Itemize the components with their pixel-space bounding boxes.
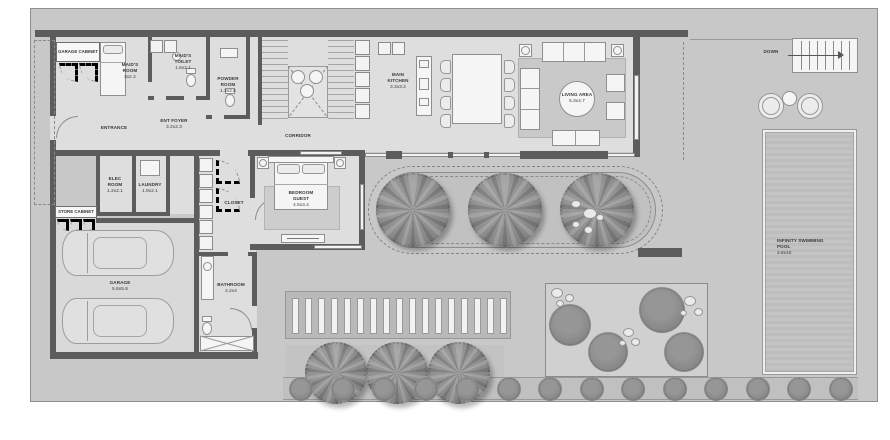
dining-chair (440, 114, 451, 128)
maids-door-gap (154, 96, 166, 100)
setback-dashed-line (683, 42, 684, 160)
closet-cabinet (199, 189, 213, 203)
pergola-slat (370, 298, 377, 334)
garage-label: GARAGE5.8x5.8 (95, 280, 145, 292)
stair-tread (328, 46, 354, 47)
hedge-bush (372, 377, 396, 401)
hedge-bush (621, 377, 645, 401)
bathroom-door-gap (252, 306, 257, 328)
hedge-bush (455, 377, 479, 401)
rock (623, 328, 634, 337)
kitchen-cabinet (355, 104, 370, 119)
bedroom-window-top (300, 151, 342, 155)
sofa-left (520, 68, 540, 130)
bathroom-label: BATHROOM2.2x4 (213, 282, 249, 294)
stair-tread (328, 100, 354, 101)
kitchen-cabinet (355, 40, 370, 55)
rock (596, 214, 604, 221)
terrace-chair-cushion (801, 97, 819, 115)
corner-table-lamp (613, 46, 622, 55)
hedge-bush (414, 377, 438, 401)
oven-box (392, 42, 405, 55)
hedge-bush (746, 377, 770, 401)
landing-chair (309, 70, 323, 84)
stair-tread (262, 88, 288, 89)
bedroom-guest-label: BEDROOM GUEST4.5x3.4 (281, 190, 321, 209)
garage-cabinet-label: GARAGE CABINET (56, 42, 100, 62)
corridor-opening (220, 150, 248, 156)
rock (571, 200, 581, 208)
laundry-label: LAUNDRY1.9x2.1 (136, 182, 164, 194)
car (62, 298, 174, 344)
dining-chair (504, 60, 515, 74)
hedge-bush (538, 377, 562, 401)
glazing-pier (520, 151, 608, 159)
stair-tread (328, 64, 354, 65)
pergola-slat (474, 298, 481, 334)
stair-tread (262, 46, 288, 47)
laundry-washer (140, 160, 160, 176)
sofa-seam (575, 131, 576, 145)
landing-chair (300, 84, 314, 98)
powder-sink (220, 48, 238, 58)
pergola-slat (422, 298, 429, 334)
wall-bottom (50, 352, 258, 359)
toilet-bowl (186, 74, 196, 87)
stair-tread (328, 118, 354, 119)
maids-room-label: MAID'S ROOM3x2.2 (116, 62, 144, 81)
dining-table (452, 54, 502, 124)
terrace-side-table (782, 91, 797, 106)
kitchen-tall-cabinets (355, 40, 370, 120)
powder-wall-right (246, 37, 250, 117)
pergola-slat (357, 298, 364, 334)
nightstand-lamp (259, 159, 267, 167)
rock (572, 221, 580, 228)
pergola-slat (305, 298, 312, 334)
rock (584, 226, 593, 234)
stair-tread (262, 118, 288, 119)
pool-label: INFINITY SWIMMING POOL3.8x10 (777, 238, 833, 257)
powder-room-label: POWDER ROOM1.3x2.6 (214, 76, 242, 95)
living-area-label: LIVING AREA6.3x4.7 (556, 92, 598, 104)
stair-tread (328, 106, 354, 107)
pergola-slat (396, 298, 403, 334)
kitchen-cabinet (355, 88, 370, 103)
laundry-wall-right (166, 156, 170, 216)
bed-pillow (277, 164, 300, 174)
garden-bush (664, 332, 704, 372)
sofa-seam (521, 88, 539, 89)
dining-chair (504, 96, 515, 110)
closet-cabinet (199, 220, 213, 234)
stair-tread (262, 76, 288, 77)
sofa-bottom (552, 130, 600, 146)
powder-toilet-bowl (225, 94, 235, 107)
stairs-down-label: DOWN (756, 49, 786, 55)
garden-bush (588, 332, 628, 372)
pergola-slat (500, 298, 507, 334)
dining-chair (504, 78, 515, 92)
armchair (606, 74, 625, 92)
wardrobe-cross (200, 336, 254, 351)
pergola-slats (285, 291, 511, 339)
bed-sheetline (274, 184, 328, 185)
bathroom-entry-gap (228, 252, 248, 256)
hedge-bush (289, 377, 313, 401)
rock (556, 300, 564, 307)
stair-tread (328, 76, 354, 77)
island-sink (419, 60, 429, 68)
pergola-slat (461, 298, 468, 334)
car (62, 230, 174, 276)
pergola-slat (448, 298, 455, 334)
rock (565, 294, 574, 302)
stair-tread (328, 88, 354, 89)
terrace-edge-line (690, 39, 792, 40)
corner-table-lamp (521, 46, 530, 55)
bedroom-wall-left (250, 156, 255, 198)
stair-tread (262, 82, 288, 83)
kitchen-cabinet (355, 72, 370, 87)
maids-toilet-label: MAID'S TOILET1.8x2.1 (170, 53, 196, 72)
stair-tread (262, 52, 288, 53)
rock (583, 208, 597, 219)
rock (694, 308, 703, 316)
elec-room-label: ELEC ROOM1.2x2.1 (101, 176, 129, 195)
island-cooktop (419, 78, 429, 90)
hedge-bush (663, 377, 687, 401)
closet-cabinet (199, 174, 213, 188)
main-kitchen-label: MAIN KITCHEN3.3x3.2 (383, 72, 413, 91)
hedge-bush (497, 377, 521, 401)
floor-plan-sheet: DOWN INFINITY SWIMMING POOL3.8x10 (0, 0, 890, 440)
glazing-post (484, 152, 489, 158)
stair-riser (849, 41, 850, 70)
maids-pillow (103, 45, 123, 54)
rock (551, 288, 563, 298)
pergola-slat (487, 298, 494, 334)
closet-label: CLOSET (218, 200, 250, 206)
courtyard-tree (376, 173, 450, 247)
closet-cabinet (199, 236, 213, 250)
garage-wall-top (96, 218, 196, 223)
stair-tread (262, 94, 288, 95)
closet-cabinet (199, 205, 213, 219)
store-cabinet-label: STORE CABINET (55, 206, 97, 218)
stair-tread (262, 70, 288, 71)
glazing-pier (386, 151, 402, 159)
bathroom-sink (203, 262, 212, 271)
oven-box (378, 42, 391, 55)
closet-cabinet-column (199, 158, 214, 250)
hedge-bush (829, 377, 853, 401)
pergola-slat (409, 298, 416, 334)
garden-bush (639, 287, 685, 333)
hedge-bush (580, 377, 604, 401)
stair-tread (262, 58, 288, 59)
closet-cabinet (199, 158, 213, 172)
rock (684, 296, 696, 306)
garden-wall-segment (638, 248, 682, 257)
stair-tread (328, 52, 354, 53)
corridor-label: CORRIDOR (276, 133, 320, 139)
hedge-bush (331, 377, 355, 401)
hedge-bush (704, 377, 728, 401)
bedroom-window-bottom (314, 245, 362, 249)
stair-tread (262, 100, 288, 101)
armchair (606, 102, 625, 120)
tv-line (287, 238, 319, 239)
living-window (634, 75, 639, 140)
pergola-slat (292, 298, 299, 334)
toilet-door-gap (184, 96, 196, 100)
powder-door-gap (212, 115, 224, 119)
wall-top (35, 30, 688, 37)
nightstand-lamp (336, 159, 344, 167)
pergola-slat (318, 298, 325, 334)
terrace-chair-cushion (762, 97, 780, 115)
stair-tread (328, 82, 354, 83)
pergola-slat (383, 298, 390, 334)
rock (680, 310, 687, 316)
sofa-seam (521, 109, 539, 110)
landing-chair (291, 70, 305, 84)
garden-bush (549, 304, 591, 346)
sofa-seam (584, 43, 585, 61)
rock (619, 340, 626, 346)
hedge-bush (787, 377, 811, 401)
bed-pillow (302, 164, 325, 174)
stair-treads-right (328, 40, 354, 122)
stair-tread (262, 112, 288, 113)
dining-chair (440, 78, 451, 92)
ent-foyer-label: ENT FOYER3.2x2.3 (152, 118, 196, 130)
sofa-seam (563, 43, 564, 61)
driveway-cabinet-strip (34, 40, 55, 205)
stair-tread (328, 58, 354, 59)
stair-tread (328, 112, 354, 113)
stairs-arrow-head (838, 51, 844, 59)
stair-tread (328, 40, 354, 41)
glazing-post (448, 152, 453, 158)
utility-wall-bottom (96, 212, 170, 216)
dining-chair (440, 96, 451, 110)
island-appliance (419, 98, 429, 106)
pergola-slat (344, 298, 351, 334)
dining-chair (440, 60, 451, 74)
rock (631, 338, 640, 346)
maids-toilet-wall (206, 37, 210, 99)
stair-tread (262, 106, 288, 107)
entrance-label: ENTRANCE (96, 125, 132, 131)
stair-tread (328, 70, 354, 71)
sofa-top (542, 42, 606, 62)
kitchen-cabinet (355, 56, 370, 71)
stair-tread (262, 64, 288, 65)
stair-tread (262, 40, 288, 41)
stair-tread (328, 94, 354, 95)
dining-chair (504, 114, 515, 128)
stairs-arrow-line (788, 55, 840, 56)
courtyard-tree (468, 173, 542, 247)
courtyard-tree (560, 173, 634, 247)
pergola-slat (331, 298, 338, 334)
washer-box (150, 40, 163, 53)
pergola-slat (435, 298, 442, 334)
bathroom-toilet-bowl (202, 322, 212, 335)
bedroom-window-right (360, 184, 364, 230)
stair-treads-left (262, 40, 288, 122)
